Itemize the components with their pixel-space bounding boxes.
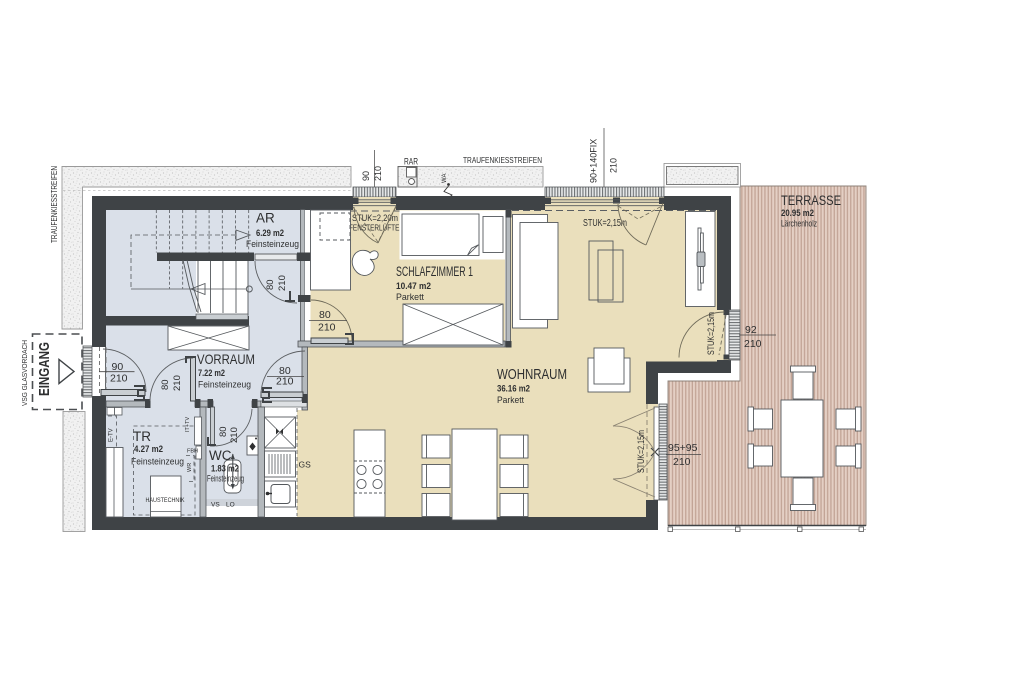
svg-text:210: 210 bbox=[172, 375, 183, 391]
svg-text:LO: LO bbox=[226, 502, 235, 509]
svg-text:20.95 m2: 20.95 m2 bbox=[781, 208, 814, 219]
svg-text:10.47 m2: 10.47 m2 bbox=[396, 281, 431, 292]
svg-text:WR: WR bbox=[187, 463, 193, 472]
svg-text:IT+TV: IT+TV bbox=[185, 417, 191, 432]
svg-text:VORRAUM: VORRAUM bbox=[197, 351, 255, 367]
svg-text:TRAUFENKIESSTREIFEN: TRAUFENKIESSTREIFEN bbox=[463, 155, 542, 165]
svg-text:GS: GS bbox=[299, 460, 312, 470]
svg-text:STUK=2,15m: STUK=2,15m bbox=[706, 312, 716, 355]
svg-text:SCHLAFZIMMER 1: SCHLAFZIMMER 1 bbox=[396, 264, 473, 279]
svg-text:Parkett: Parkett bbox=[497, 395, 524, 406]
svg-text:EINGANG: EINGANG bbox=[36, 342, 53, 396]
svg-text:RAR: RAR bbox=[404, 157, 418, 167]
svg-text:95+95: 95+95 bbox=[668, 442, 698, 454]
svg-text:210: 210 bbox=[277, 275, 288, 291]
svg-text:90: 90 bbox=[112, 361, 124, 373]
svg-text:80: 80 bbox=[160, 379, 171, 390]
svg-text:FBH: FBH bbox=[187, 449, 198, 455]
svg-text:Feinsteinzeug: Feinsteinzeug bbox=[131, 457, 184, 468]
svg-text:80: 80 bbox=[265, 279, 276, 290]
svg-text:VS: VS bbox=[211, 502, 220, 509]
svg-text:STUK=2,15m: STUK=2,15m bbox=[636, 430, 646, 473]
svg-text:Feinsteinzeug: Feinsteinzeug bbox=[198, 380, 251, 391]
svg-text:WA: WA bbox=[442, 174, 448, 183]
svg-text:7.22 m2: 7.22 m2 bbox=[198, 368, 225, 379]
svg-text:210: 210 bbox=[229, 427, 240, 443]
svg-text:HAUSTECHNIK: HAUSTECHNIK bbox=[146, 497, 186, 504]
svg-text:4.27 m2: 4.27 m2 bbox=[134, 444, 163, 455]
svg-text:TR: TR bbox=[133, 429, 151, 444]
svg-text:FENSTERLÜFTER: FENSTERLÜFTER bbox=[349, 223, 404, 233]
svg-text:WOHNRAUM: WOHNRAUM bbox=[497, 367, 567, 383]
svg-text:E-TV: E-TV bbox=[109, 428, 115, 442]
svg-text:WC: WC bbox=[209, 448, 232, 463]
svg-text:210: 210 bbox=[110, 373, 128, 385]
svg-text:6.29 m2: 6.29 m2 bbox=[256, 228, 284, 239]
svg-text:92: 92 bbox=[745, 324, 757, 336]
svg-text:210: 210 bbox=[276, 376, 294, 388]
svg-text:Feinsteinzeug: Feinsteinzeug bbox=[207, 474, 244, 485]
svg-text:210: 210 bbox=[609, 158, 619, 173]
svg-text:Lärchenholz: Lärchenholz bbox=[781, 219, 817, 229]
svg-text:Parkett: Parkett bbox=[396, 292, 424, 303]
svg-text:90+140FIX: 90+140FIX bbox=[589, 139, 599, 183]
svg-text:210: 210 bbox=[673, 456, 691, 468]
svg-text:TRAUFENKIESSTREIFEN: TRAUFENKIESSTREIFEN bbox=[49, 166, 59, 243]
svg-text:80: 80 bbox=[319, 309, 331, 321]
svg-text:TERRASSE: TERRASSE bbox=[781, 193, 841, 208]
svg-text:Feinsteinzeug: Feinsteinzeug bbox=[246, 239, 299, 250]
svg-text:90: 90 bbox=[361, 171, 371, 181]
svg-text:80: 80 bbox=[218, 426, 229, 437]
svg-text:210: 210 bbox=[373, 166, 383, 181]
svg-text:STUK=2,15m: STUK=2,15m bbox=[583, 218, 627, 229]
svg-text:210: 210 bbox=[318, 322, 336, 334]
svg-text:AR: AR bbox=[256, 211, 275, 226]
svg-text:VSG GLASVORDACH: VSG GLASVORDACH bbox=[22, 340, 29, 406]
svg-text:210: 210 bbox=[744, 338, 762, 350]
svg-text:36.16 m2: 36.16 m2 bbox=[497, 384, 530, 395]
